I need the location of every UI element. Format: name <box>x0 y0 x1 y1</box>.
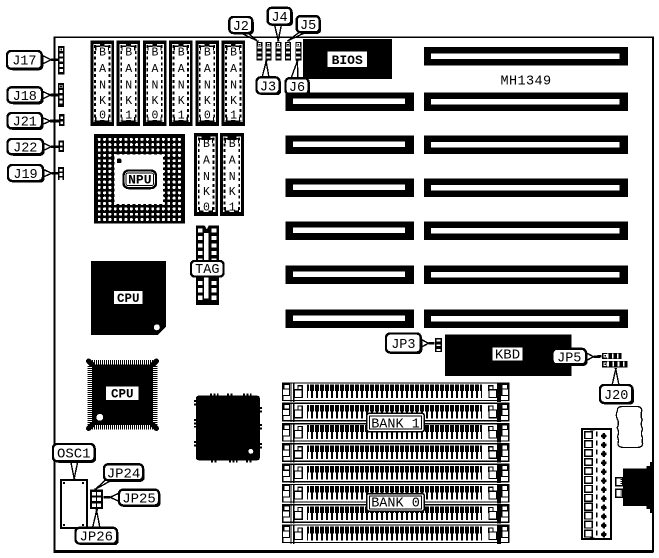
svg-text:BANK 0: BANK 0 <box>371 497 420 512</box>
svg-text:N: N <box>203 171 210 184</box>
svg-text:K: K <box>125 95 132 108</box>
svg-text:J21: J21 <box>13 116 37 131</box>
svg-text:J5: J5 <box>300 19 316 34</box>
svg-text:N: N <box>230 80 237 93</box>
svg-text:0: 0 <box>203 202 210 215</box>
svg-text:B: B <box>229 138 236 151</box>
svg-text:K: K <box>203 186 210 199</box>
svg-text:N: N <box>229 171 236 184</box>
svg-text:K: K <box>178 95 185 108</box>
svg-text:A: A <box>125 63 132 76</box>
svg-text:K: K <box>151 95 158 108</box>
svg-text:B: B <box>125 47 132 60</box>
svg-text:BANK 1: BANK 1 <box>371 417 420 432</box>
svg-text:1: 1 <box>178 110 185 123</box>
svg-text:N: N <box>99 80 106 93</box>
svg-text:JP26: JP26 <box>79 530 113 546</box>
svg-text:B: B <box>204 47 211 60</box>
svg-text:J17: J17 <box>12 55 36 70</box>
svg-text:JP5: JP5 <box>557 351 581 366</box>
svg-text:0: 0 <box>99 110 106 123</box>
svg-text:N: N <box>178 80 185 93</box>
svg-text:B: B <box>151 47 158 60</box>
svg-text:A: A <box>178 63 185 76</box>
svg-text:N: N <box>204 80 211 93</box>
svg-text:CPU: CPU <box>111 388 134 402</box>
svg-text:J4: J4 <box>271 11 287 26</box>
svg-text:0: 0 <box>151 110 158 123</box>
svg-text:K: K <box>230 95 237 108</box>
svg-text:BIOS: BIOS <box>332 53 363 68</box>
svg-text:J20: J20 <box>604 389 628 404</box>
svg-text:B: B <box>203 138 210 151</box>
svg-text:OSC1: OSC1 <box>57 447 91 463</box>
svg-text:1: 1 <box>229 202 236 215</box>
svg-text:B: B <box>178 47 185 60</box>
svg-text:MH1349: MH1349 <box>501 75 552 90</box>
svg-text:1: 1 <box>125 110 132 123</box>
svg-text:J18: J18 <box>13 90 37 105</box>
svg-text:A: A <box>229 155 236 168</box>
svg-text:B: B <box>99 47 106 60</box>
svg-text:NPU: NPU <box>128 173 151 188</box>
svg-text:A: A <box>203 155 210 168</box>
svg-text:A: A <box>204 63 211 76</box>
svg-text:JP3: JP3 <box>391 338 415 353</box>
svg-text:J3: J3 <box>260 80 276 95</box>
svg-text:1: 1 <box>230 110 237 123</box>
svg-text:A: A <box>99 63 106 76</box>
svg-text:K: K <box>99 95 106 108</box>
svg-text:A: A <box>230 63 237 76</box>
svg-text:A: A <box>151 63 158 76</box>
svg-text:N: N <box>151 80 158 93</box>
svg-text:0: 0 <box>204 110 211 123</box>
svg-text:J2: J2 <box>233 20 249 35</box>
svg-text:KBD: KBD <box>495 348 520 364</box>
svg-text:CPU: CPU <box>117 292 140 306</box>
svg-text:TAG: TAG <box>195 263 219 278</box>
svg-text:K: K <box>229 186 236 199</box>
svg-text:JP25: JP25 <box>122 492 156 508</box>
svg-text:B: B <box>230 47 237 60</box>
svg-text:J19: J19 <box>13 168 37 183</box>
svg-text:JP24: JP24 <box>107 466 141 482</box>
svg-text:N: N <box>125 80 132 93</box>
svg-text:J22: J22 <box>13 141 37 156</box>
svg-text:K: K <box>204 95 211 108</box>
